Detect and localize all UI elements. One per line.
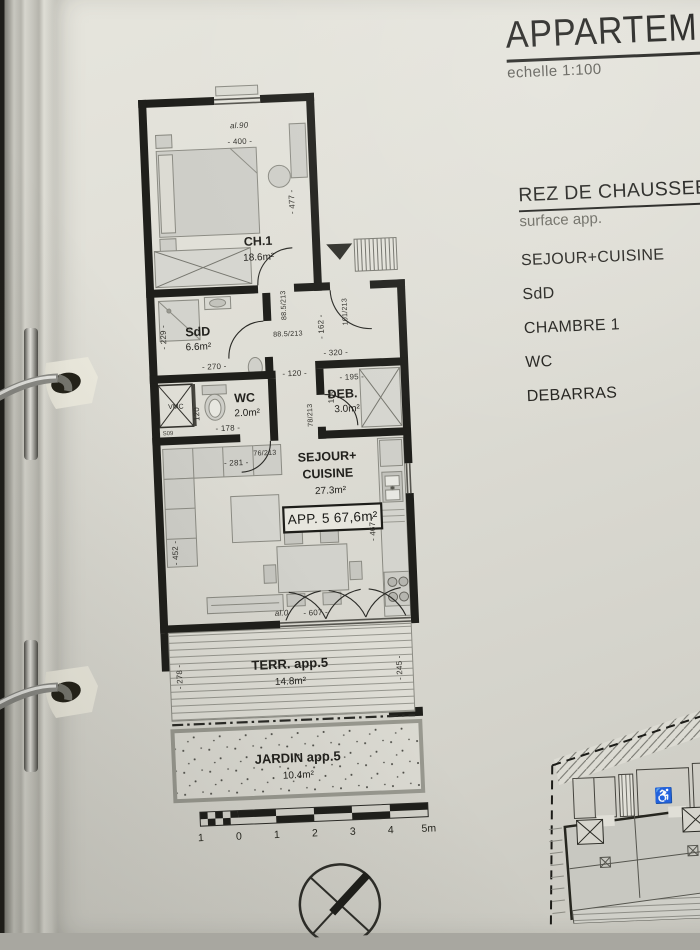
dim-sejour-left: - 452 - xyxy=(170,540,180,565)
tv-unit xyxy=(207,595,284,614)
window-sill-label-sejour: al.0 xyxy=(275,608,289,618)
door-size-entrance: 101/213 xyxy=(339,298,349,326)
fridge xyxy=(379,439,402,466)
room-area-deb: 3.0m² xyxy=(334,403,361,415)
binder-photo: APPARTEM echelle 1:100 REZ DE CHAUSSEE s… xyxy=(0,0,700,933)
door-size-wc: 76/213 xyxy=(253,448,277,458)
dim-hall-width: - 320 - xyxy=(323,348,348,358)
paper-stack-edge xyxy=(0,0,58,933)
scale-bar-labels: 1012345m xyxy=(198,822,437,844)
shaft-sublabel: S09 xyxy=(163,431,175,437)
kitchen-sink xyxy=(382,471,403,502)
binder-ring xyxy=(0,353,112,417)
dim-deb-height: 166 xyxy=(326,389,336,404)
road-hatch xyxy=(552,707,700,786)
nightstand xyxy=(156,135,173,149)
scalebar-label: 3 xyxy=(350,826,356,838)
building-footprint xyxy=(564,805,700,924)
dim-sejour-width: - 607 - xyxy=(303,608,328,618)
wardrobe-ch1 xyxy=(154,248,251,288)
scalebar-label: 1 xyxy=(198,832,204,844)
accessible-parking-icon: ♿ xyxy=(654,786,673,805)
dim-kitchen-side: - 467 - xyxy=(368,516,378,541)
shaft-label: VMC xyxy=(168,404,184,412)
room-name-wc: WC xyxy=(234,391,255,406)
room-name-sdd: SdD xyxy=(185,324,211,339)
chair-round xyxy=(268,165,291,188)
binder-ring xyxy=(0,662,112,726)
legend-list: SEJOUR+CUISINESdDCHAMBRE 1WCDEBARRAS xyxy=(521,242,700,422)
floor-plan: CH.1 18.6m² SdD 6.6m² WC 2.0m² DEB. 3.0m… xyxy=(125,73,481,944)
door-size-sdd: 88.5/213 xyxy=(273,328,303,338)
room-area-ch1: 18.6m² xyxy=(243,252,275,264)
dim-terrace-left: - 278 - xyxy=(175,664,185,689)
dim-ch1-height: - 477 - xyxy=(287,189,297,214)
dim-terrace-right: - 245 - xyxy=(394,655,404,680)
entrance-landing-hatch xyxy=(354,237,397,271)
coffee-table xyxy=(231,495,281,543)
scalebar-label: 2 xyxy=(312,827,318,839)
scale-bar: 1012345m xyxy=(197,802,437,844)
door-size-ch1: 88.5/213 xyxy=(278,290,288,320)
window-sill-label-ch1: al.90 xyxy=(230,121,249,131)
dim-wc-width: - 178 - xyxy=(215,423,240,433)
door-arc-entrance xyxy=(330,289,372,331)
room-name-terrace: TERR. app.5 xyxy=(251,655,328,673)
wardrobe-deb xyxy=(359,367,401,427)
entrance-arrow xyxy=(326,243,353,260)
room-area-terrace: 14.8m² xyxy=(275,676,307,688)
room-area-wc: 2.0m² xyxy=(234,407,261,419)
room-name-sejour-1: SEJOUR+ xyxy=(297,448,356,464)
door-arc-sdd xyxy=(227,321,264,358)
washbasin xyxy=(204,296,230,309)
sheet-title: APPARTEM xyxy=(505,4,700,63)
compass-icon xyxy=(298,863,381,944)
dim-sdd-width: - 270 - xyxy=(202,362,227,372)
dim-corridor-width: - 120 - xyxy=(282,368,307,378)
toilet xyxy=(202,385,227,421)
desk xyxy=(289,123,307,178)
scalebar-label: 4 xyxy=(388,824,394,836)
room-area-garden: 10.4m² xyxy=(283,769,315,781)
room-area-sdd: 6.6m² xyxy=(185,341,212,353)
scalebar-label: 1 xyxy=(274,829,280,841)
scalebar-label: 0 xyxy=(236,830,242,842)
door-size-deb: 78/213 xyxy=(305,403,315,427)
window-ledge xyxy=(216,85,258,96)
page-content: APPARTEM echelle 1:100 REZ DE CHAUSSEE s… xyxy=(0,0,700,947)
title-block: APPARTEM echelle 1:100 xyxy=(505,3,700,82)
terrace-decking xyxy=(168,623,414,721)
room-name-sejour-2: CUISINE xyxy=(302,465,353,481)
dim-sdd-height: - 229 - xyxy=(158,325,168,350)
bed-pillow xyxy=(158,155,175,234)
dim-sofa: - 281 - xyxy=(224,458,249,468)
dim-wc-height: 120 xyxy=(192,406,202,421)
dim-deb-width: - 195 - xyxy=(339,372,364,382)
dim-ch1-width: - 400 - xyxy=(227,136,252,146)
site-plan: ♿ xyxy=(529,683,700,925)
legend: REZ DE CHAUSSEE surface app. SEJOUR+CUIS… xyxy=(518,174,700,422)
scalebar-label: 5m xyxy=(421,822,436,835)
dim-hall-depth: - 162 - xyxy=(316,314,326,339)
room-name-ch1: CH.1 xyxy=(244,234,273,249)
room-area-sejour: 27.3m² xyxy=(315,485,347,497)
